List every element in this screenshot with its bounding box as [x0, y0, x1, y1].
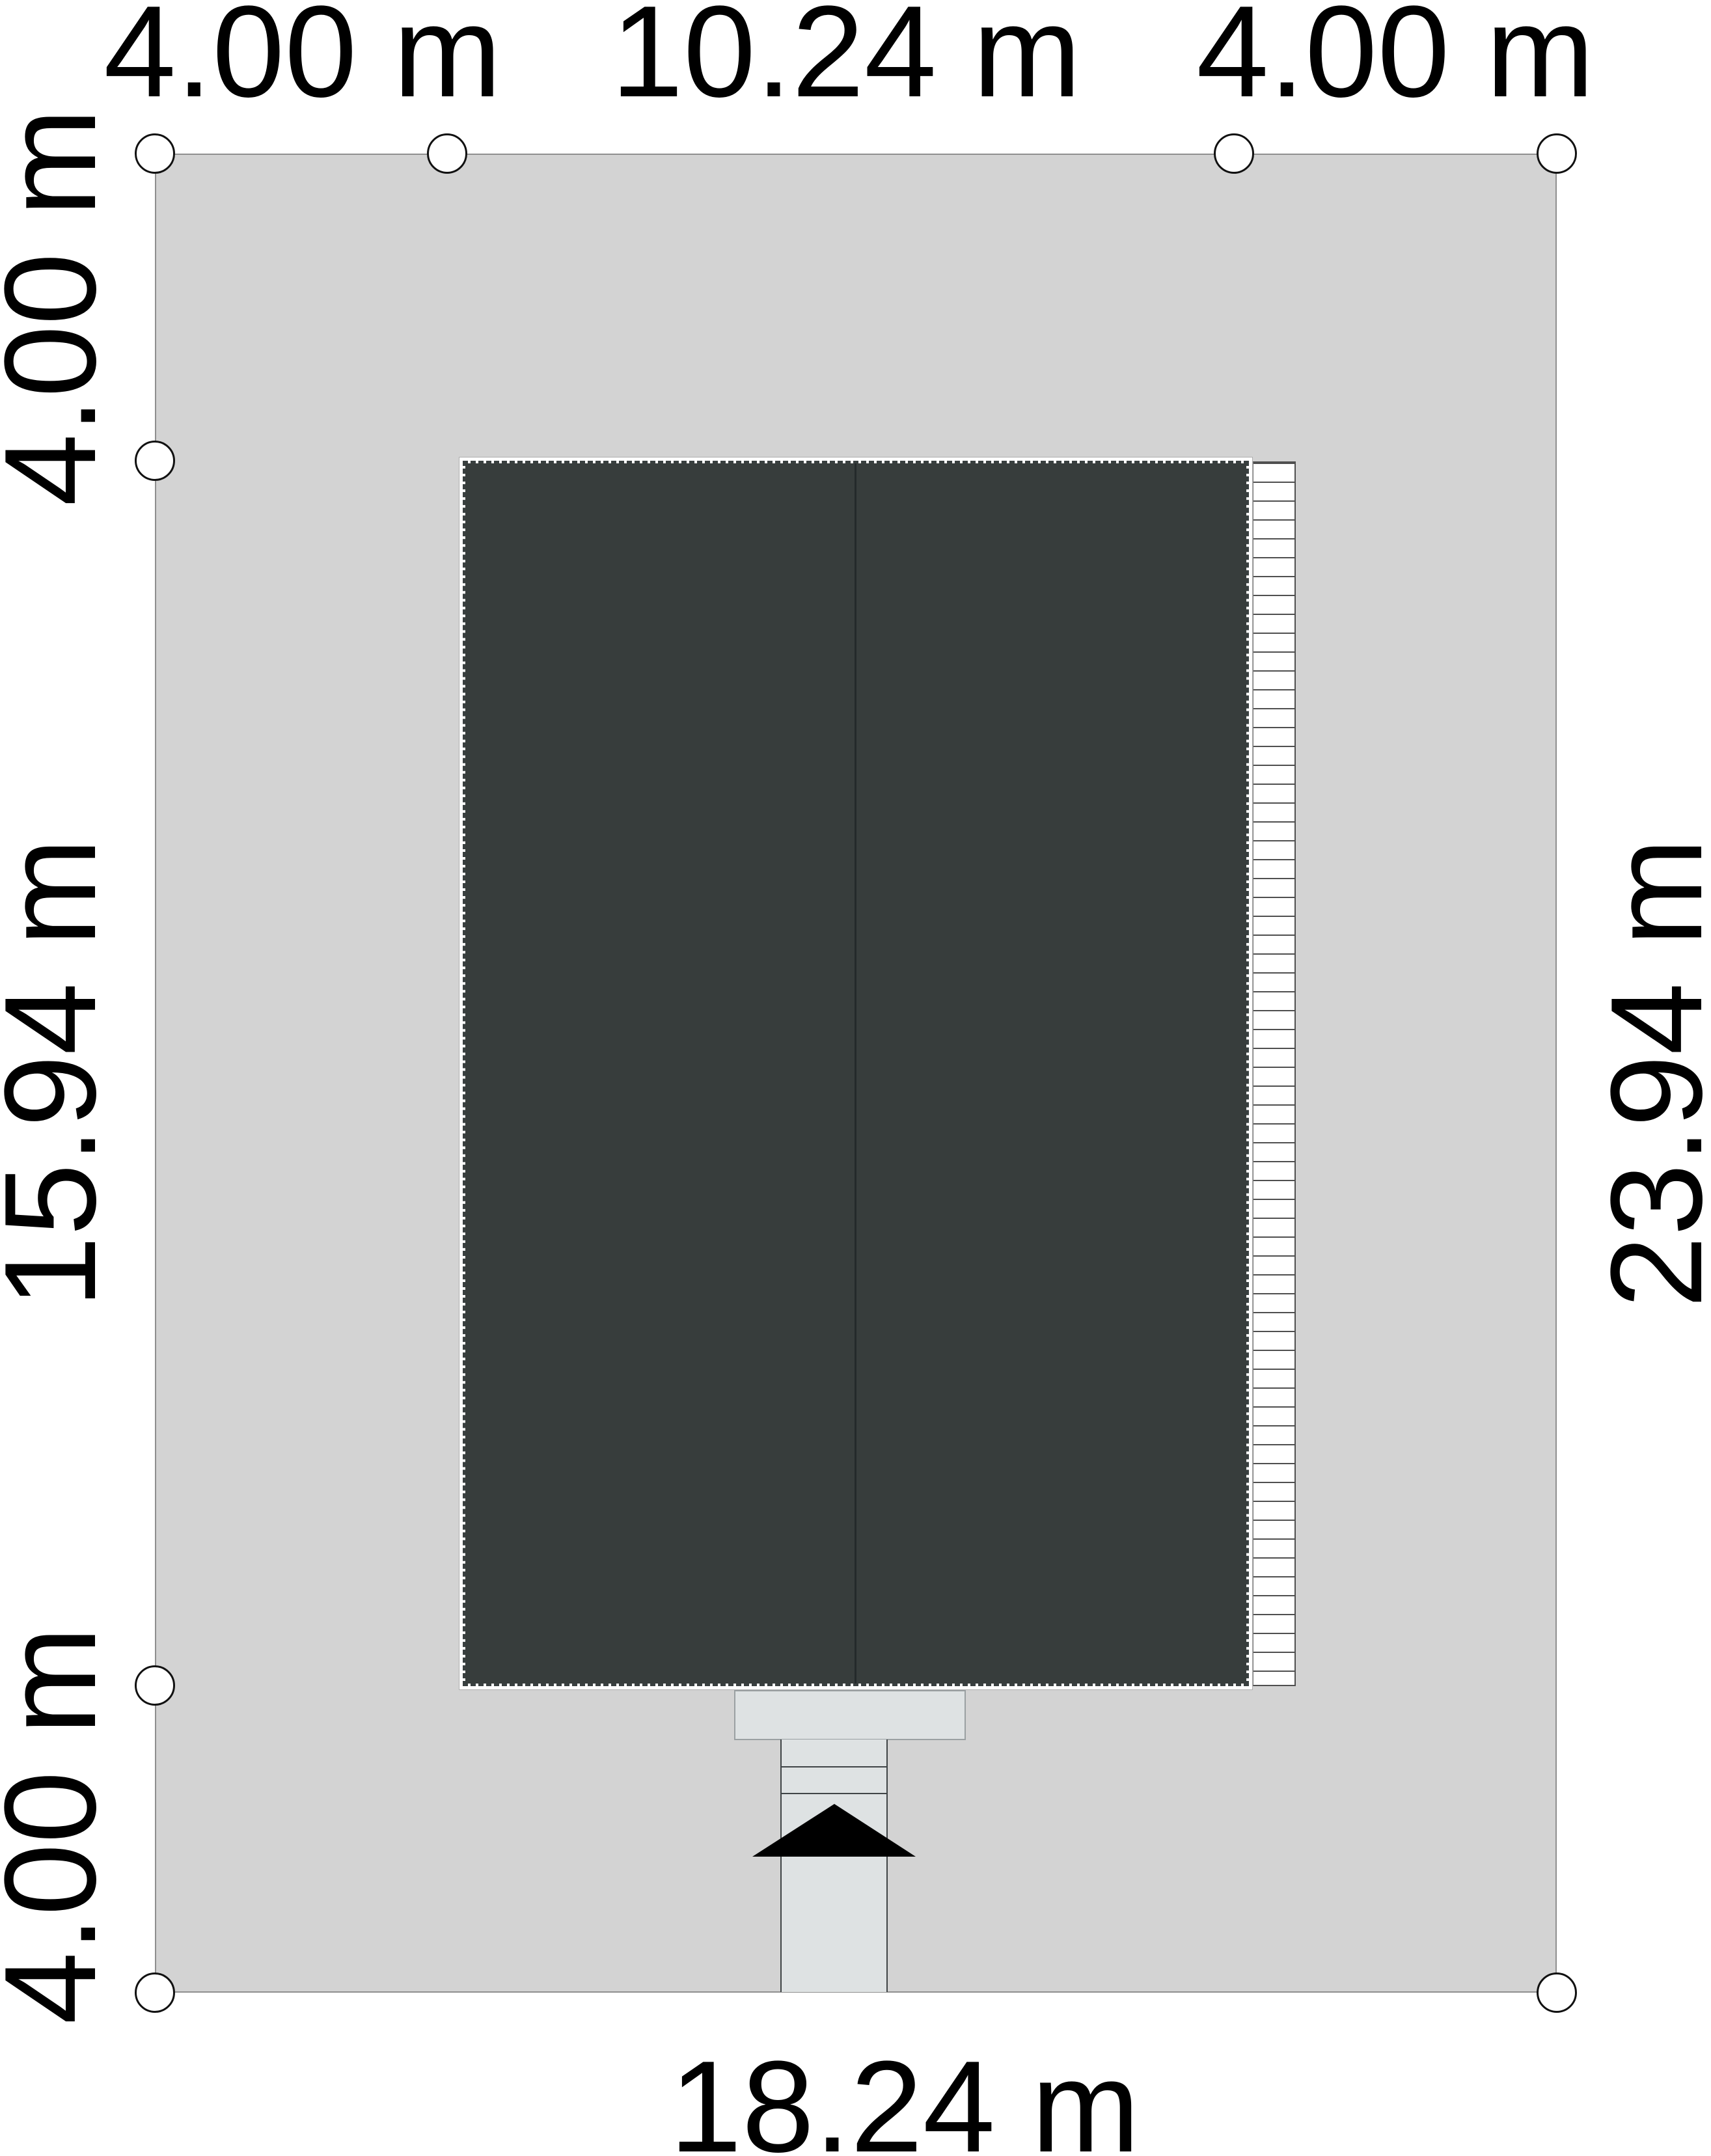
- survey-point-marker: [427, 133, 467, 174]
- survey-point-marker: [135, 1972, 175, 2013]
- eaves-detail-strip: [1253, 461, 1296, 1686]
- roof-ridge-line: [855, 463, 856, 1684]
- survey-point-marker: [135, 133, 175, 174]
- roof-outline: [459, 457, 1253, 1690]
- dim-left-setback-bottom: 4.00 m: [0, 1565, 116, 2086]
- entrance-arrow-icon: [752, 1804, 916, 1857]
- site-plan: 4.00 m 10.24 m 4.00 m 4.00 m 15.94 m 4.0…: [0, 0, 1711, 2156]
- survey-point-marker: [135, 1665, 175, 1706]
- dim-top-building-width: 10.24 m: [586, 0, 1106, 117]
- entrance-walkway: [780, 1740, 888, 1992]
- entrance-porch: [734, 1690, 966, 1740]
- survey-point-marker: [1537, 133, 1577, 174]
- dim-top-setback-left: 4.00 m: [42, 0, 563, 117]
- roof-dark-surface: [463, 461, 1249, 1686]
- dim-right-plot-depth: 23.94 m: [1592, 813, 1711, 1333]
- survey-point-marker: [1537, 1972, 1577, 2013]
- survey-point-marker: [1214, 133, 1254, 174]
- walkway-step-line: [780, 1766, 888, 1767]
- dim-bottom-plot-width: 18.24 m: [644, 2042, 1165, 2156]
- survey-point-marker: [135, 441, 175, 481]
- walkway-step-line: [780, 1793, 888, 1794]
- dim-left-building-depth: 15.94 m: [0, 813, 116, 1333]
- dim-top-setback-right: 4.00 m: [1135, 0, 1656, 117]
- dim-left-setback-top: 4.00 m: [0, 47, 116, 567]
